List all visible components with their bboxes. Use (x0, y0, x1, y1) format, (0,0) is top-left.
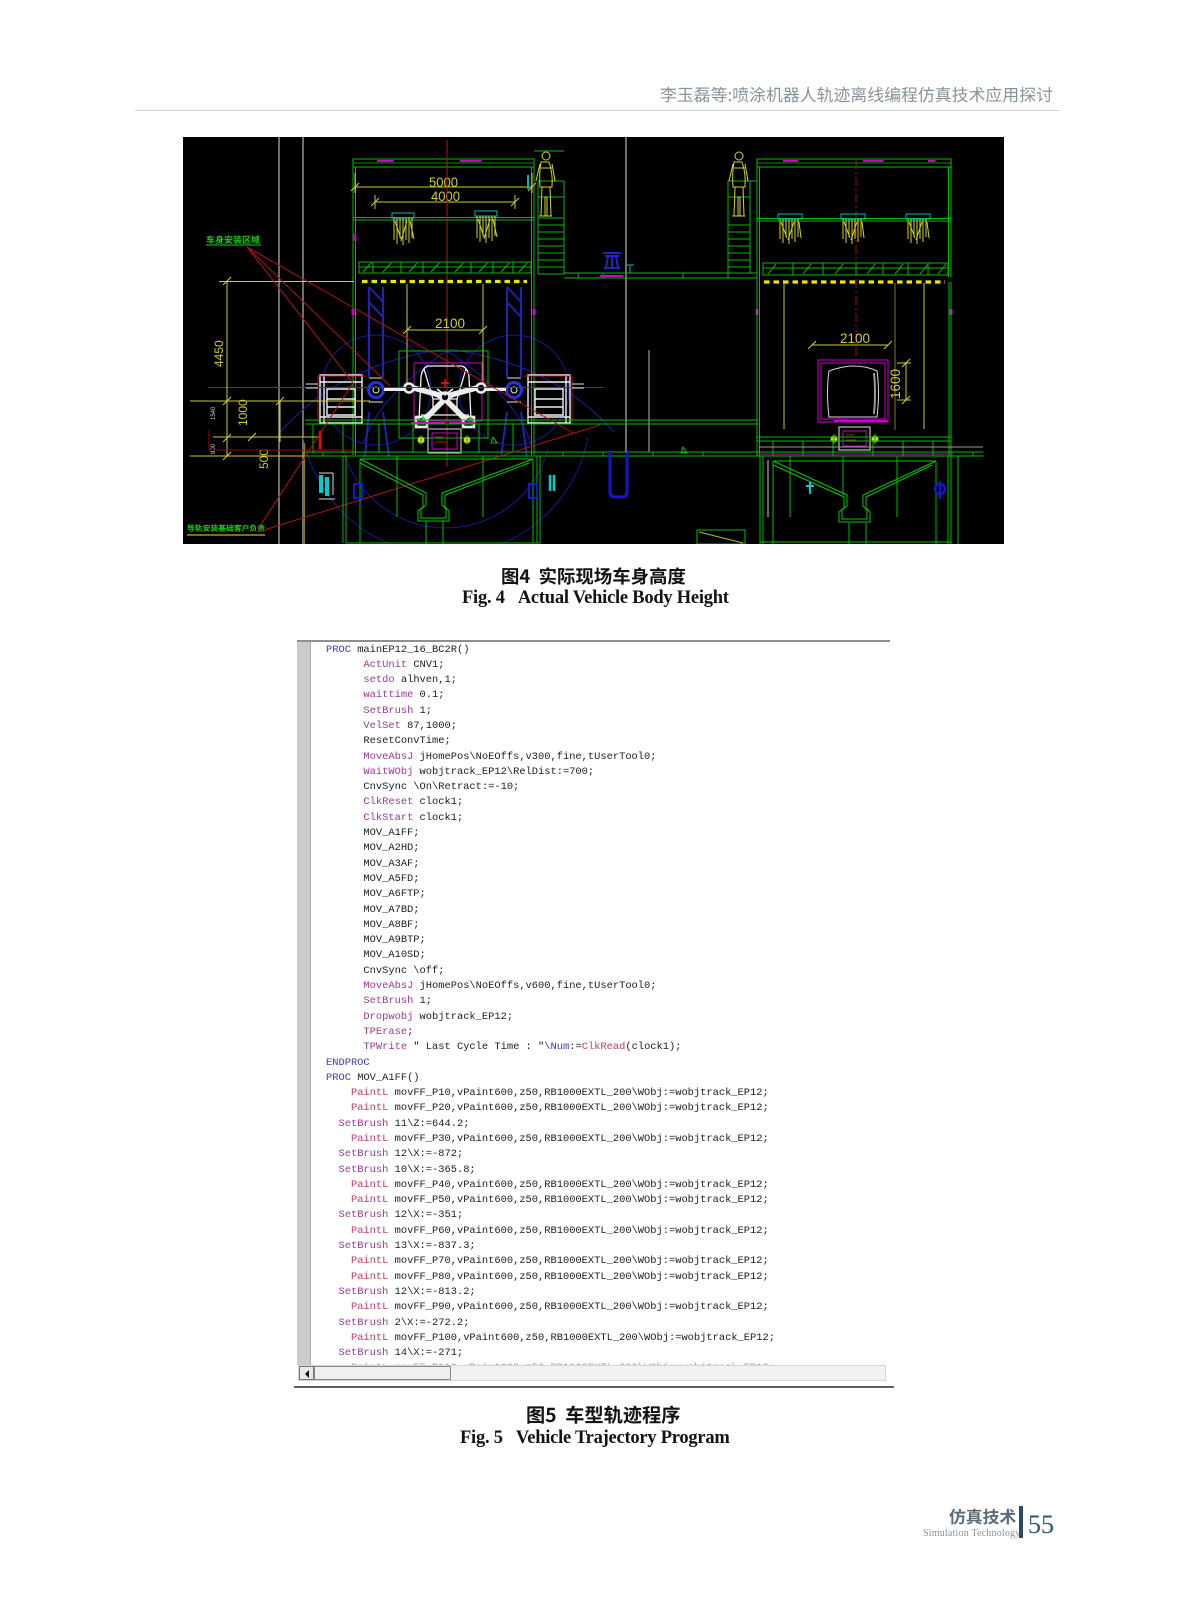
svg-text:1000: 1000 (236, 399, 250, 426)
svg-text:4000: 4000 (431, 188, 460, 204)
svg-text:500: 500 (257, 449, 271, 469)
svg-text:1600: 1600 (887, 369, 903, 399)
svg-text:1540: 1540 (211, 406, 217, 420)
svg-text:2100: 2100 (840, 330, 870, 346)
svg-text:2100: 2100 (435, 315, 465, 331)
svg-text:800: 800 (211, 443, 217, 454)
svg-text:4450: 4450 (212, 340, 226, 367)
